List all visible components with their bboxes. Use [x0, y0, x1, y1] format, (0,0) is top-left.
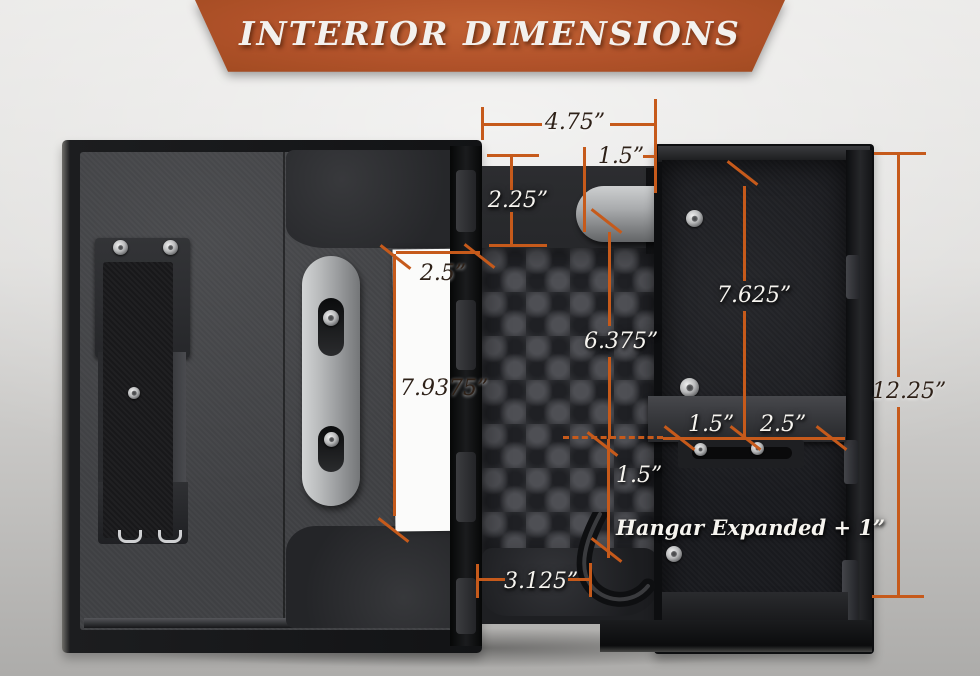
hinge-knuckle — [846, 255, 860, 299]
dim-shelf-left-label: 1.5” — [688, 412, 732, 438]
screw-icon — [666, 546, 682, 562]
dim-top-offset-line-right — [643, 155, 656, 158]
handle-slot — [318, 298, 344, 356]
screw-icon — [694, 443, 707, 456]
safe-body-bottom-edge — [600, 620, 872, 652]
interior-dimensions-diagram: 4.75” 1.5” 2.25” 2.5” 7.9375” 6.375” 7.6… — [0, 0, 980, 676]
dim-overall-height-line-lower — [897, 407, 900, 597]
dim-right-depth-label: 7.625” — [717, 283, 781, 309]
bolt-icon — [686, 210, 703, 227]
lock-mechanism-body — [103, 262, 173, 538]
foam-block-top — [286, 150, 472, 248]
dim-door-depth-tbar-bottom — [489, 244, 547, 247]
dim-bottom-width-line-left — [479, 578, 505, 581]
screw-icon — [323, 310, 339, 326]
dim-center-height-line-lower — [608, 357, 611, 439]
dim-overall-height-label: 12.25” — [872, 379, 934, 405]
hangar-note-label: Hangar Expanded + 1” — [616, 515, 806, 541]
dim-door-depth-tbar-top — [487, 154, 539, 157]
dim-hangar-drop-line — [607, 439, 610, 558]
dim-top-width-label: 4.75” — [543, 110, 607, 136]
dim-bottom-width-tick-right — [589, 563, 592, 597]
dim-door-depth-stem-top — [510, 157, 513, 190]
shelf-bracket-slot — [692, 447, 792, 459]
dim-overall-height-tbar-top — [874, 152, 926, 155]
screw-icon — [163, 240, 178, 255]
dim-right-depth-line-lower — [743, 311, 746, 438]
hinge-knuckle — [456, 170, 476, 232]
wire-loop-icon — [158, 530, 182, 543]
dim-shelf-baseline-dashed — [563, 436, 663, 439]
dim-top-width-line-left — [484, 123, 542, 126]
dim-bottom-width-line-right — [568, 578, 591, 581]
dim-overall-height-line-upper — [897, 155, 900, 377]
dim-top-width-extension-right — [654, 99, 657, 193]
screw-icon — [128, 387, 140, 399]
dim-center-height-label: 6.375” — [584, 329, 644, 355]
door-panel-seam — [283, 152, 285, 628]
dim-hangar-drop-label: 1.5” — [616, 463, 660, 489]
screw-icon — [324, 432, 339, 447]
dim-card-width-label: 2.5” — [417, 261, 469, 287]
screw-icon — [113, 240, 128, 255]
dim-bottom-width-label: 3.125” — [504, 569, 568, 595]
dim-right-depth-line-upper — [743, 186, 746, 281]
dim-card-height-line — [393, 254, 396, 516]
dim-shelf-right-label: 2.5” — [760, 412, 806, 438]
hinge-knuckle — [456, 300, 476, 370]
dim-door-depth-label: 2.25” — [487, 188, 549, 214]
dim-top-width-line-right — [610, 123, 656, 126]
dim-center-height-line-upper — [608, 232, 611, 326]
page-title: INTERIOR DIMENSIONS — [239, 14, 741, 53]
dim-top-offset-label: 1.5” — [596, 144, 646, 170]
hinge-knuckle — [456, 452, 476, 522]
banner-ribbon: INTERIOR DIMENSIONS — [195, 0, 785, 74]
dim-top-offset-tick-left — [583, 147, 586, 232]
dim-card-height-label: 7.9375” — [400, 376, 478, 402]
dim-card-width-line — [396, 251, 480, 254]
bolt-icon — [680, 378, 699, 397]
hinge-knuckle — [456, 578, 476, 634]
wire-loop-icon — [118, 530, 142, 543]
dim-bottom-width-tick-left — [476, 564, 479, 598]
banner: INTERIOR DIMENSIONS — [195, 0, 785, 74]
dim-door-depth-stem-bottom — [510, 212, 513, 246]
dim-overall-height-tbar-bottom — [872, 595, 924, 598]
